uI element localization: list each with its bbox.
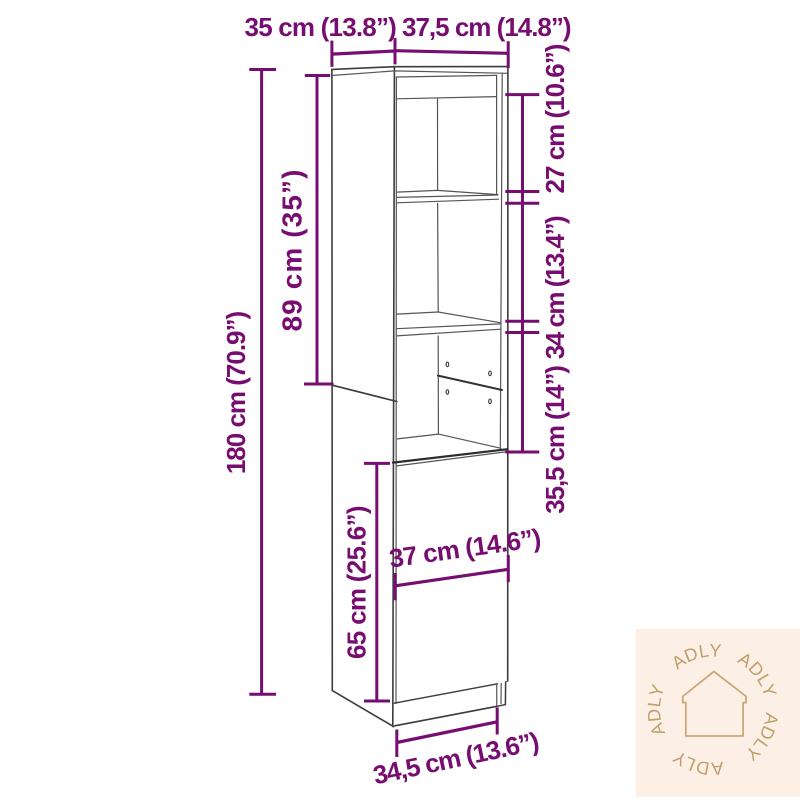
- svg-text:89 cm (35”): 89 cm (35”): [277, 168, 308, 331]
- svg-text:35,5 cm (14”): 35,5 cm (14”): [540, 366, 570, 514]
- svg-text:65 cm (25.6”): 65 cm (25.6”): [342, 506, 372, 659]
- svg-text:37,5 cm (14.8”): 37,5 cm (14.8”): [402, 12, 571, 42]
- svg-text:180 cm (70.9”): 180 cm (70.9”): [221, 311, 251, 474]
- svg-text:27 cm (10.6”): 27 cm (10.6”): [540, 44, 570, 193]
- svg-text:35 cm (13.8”): 35 cm (13.8”): [245, 12, 397, 42]
- svg-text:34 cm (13.4”): 34 cm (13.4”): [540, 216, 570, 359]
